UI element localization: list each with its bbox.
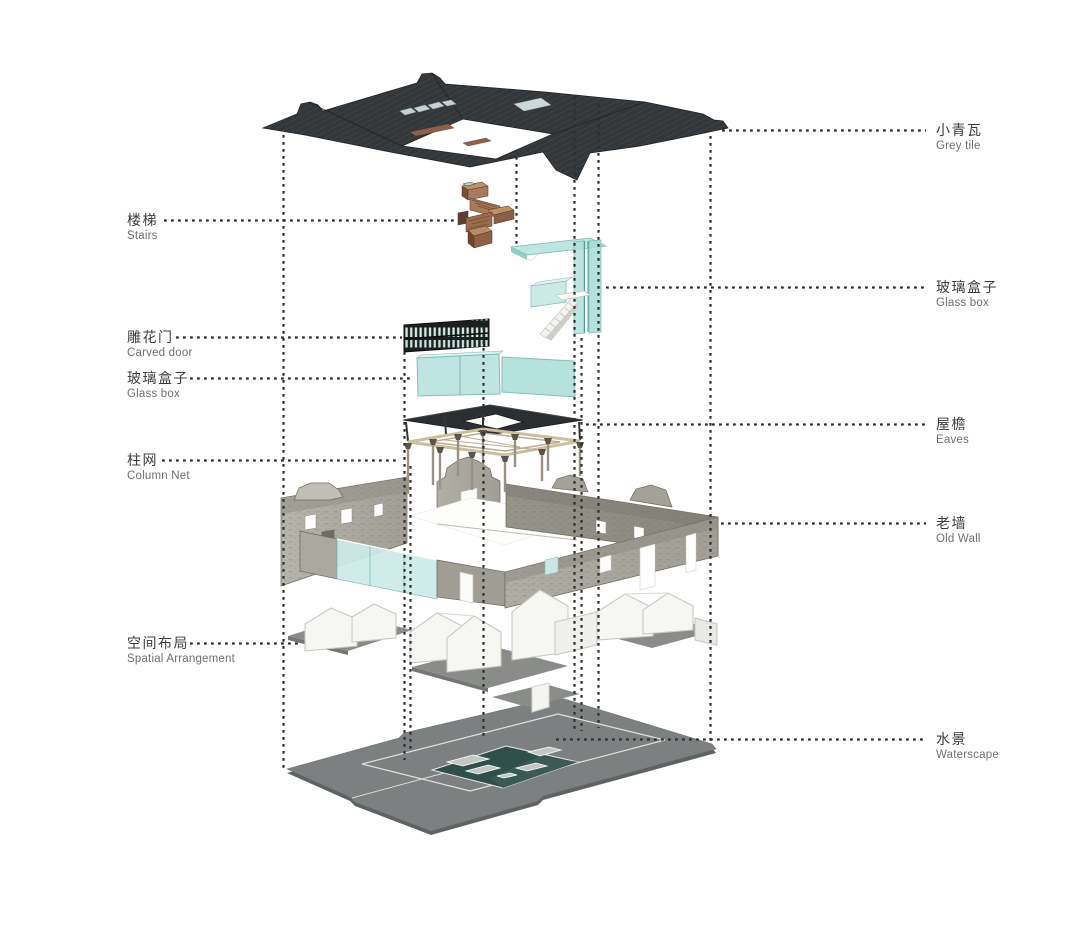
label-grey-tile: 小青瓦 Grey tile [936, 122, 983, 153]
glass-panel-left [417, 354, 500, 396]
label-column-net: 柱网 Column Net [127, 452, 190, 483]
label-stairs-en: Stairs [127, 230, 158, 243]
roof-tile-texture [263, 73, 728, 180]
wall-front-center-door [460, 572, 473, 603]
label-grey-tile-zh: 小青瓦 [936, 122, 983, 139]
label-glass-box-left-zh: 玻璃盒子 [127, 370, 189, 387]
label-column-net-zh: 柱网 [127, 452, 190, 469]
glass-panel-right [502, 357, 575, 397]
label-waterscape-zh: 水景 [936, 731, 999, 748]
glass-panels-layer [417, 351, 575, 397]
wall-front-right-glass-window [545, 557, 558, 575]
label-grey-tile-en: Grey tile [936, 140, 983, 153]
old-wall-layer [281, 457, 718, 608]
wall-gable-right-2 [630, 485, 672, 507]
label-stairs: 楼梯 Stairs [127, 212, 158, 243]
wall-gable-left [294, 483, 343, 500]
label-old-wall-en: Old Wall [936, 533, 981, 546]
label-glass-box-right-zh: 玻璃盒子 [936, 279, 998, 296]
label-spatial-arrangement-en: Spatial Arrangement [127, 653, 235, 666]
label-carved-door: 雕花门 Carved door [127, 329, 192, 360]
label-stairs-zh: 楼梯 [127, 212, 158, 229]
label-carved-door-en: Carved door [127, 347, 192, 360]
label-glass-box-right: 玻璃盒子 Glass box [936, 279, 998, 310]
diagram-canvas: 楼梯 Stairs 雕花门 Carved door 玻璃盒子 Glass box… [0, 0, 1080, 934]
carved-door-layer [404, 319, 489, 352]
spatial-arrangement-layer [288, 590, 718, 712]
label-eaves-zh: 屋檐 [936, 416, 969, 433]
label-eaves-en: Eaves [936, 434, 969, 447]
label-glass-box-left: 玻璃盒子 Glass box [127, 370, 189, 401]
roof-grey-tile-layer [263, 73, 728, 180]
label-old-wall: 老墙 Old Wall [936, 515, 981, 546]
label-spatial-arrangement: 空间布局 Spatial Arrangement [127, 635, 235, 666]
label-column-net-en: Column Net [127, 470, 190, 483]
label-waterscape: 水景 Waterscape [936, 731, 999, 762]
label-spatial-arrangement-zh: 空间布局 [127, 635, 235, 652]
waterscape-base-layer [287, 697, 716, 835]
glass-box-upper-layer [511, 238, 606, 341]
label-eaves: 屋檐 Eaves [936, 416, 969, 447]
label-carved-door-zh: 雕花门 [127, 329, 192, 346]
label-old-wall-zh: 老墙 [936, 515, 981, 532]
label-glass-box-right-en: Glass box [936, 297, 998, 310]
wall-front-pier [300, 531, 337, 579]
label-waterscape-en: Waterscape [936, 749, 999, 762]
wall-gable-right-1 [552, 475, 588, 492]
label-glass-box-left-en: Glass box [127, 388, 189, 401]
stairs-layer [458, 182, 514, 248]
